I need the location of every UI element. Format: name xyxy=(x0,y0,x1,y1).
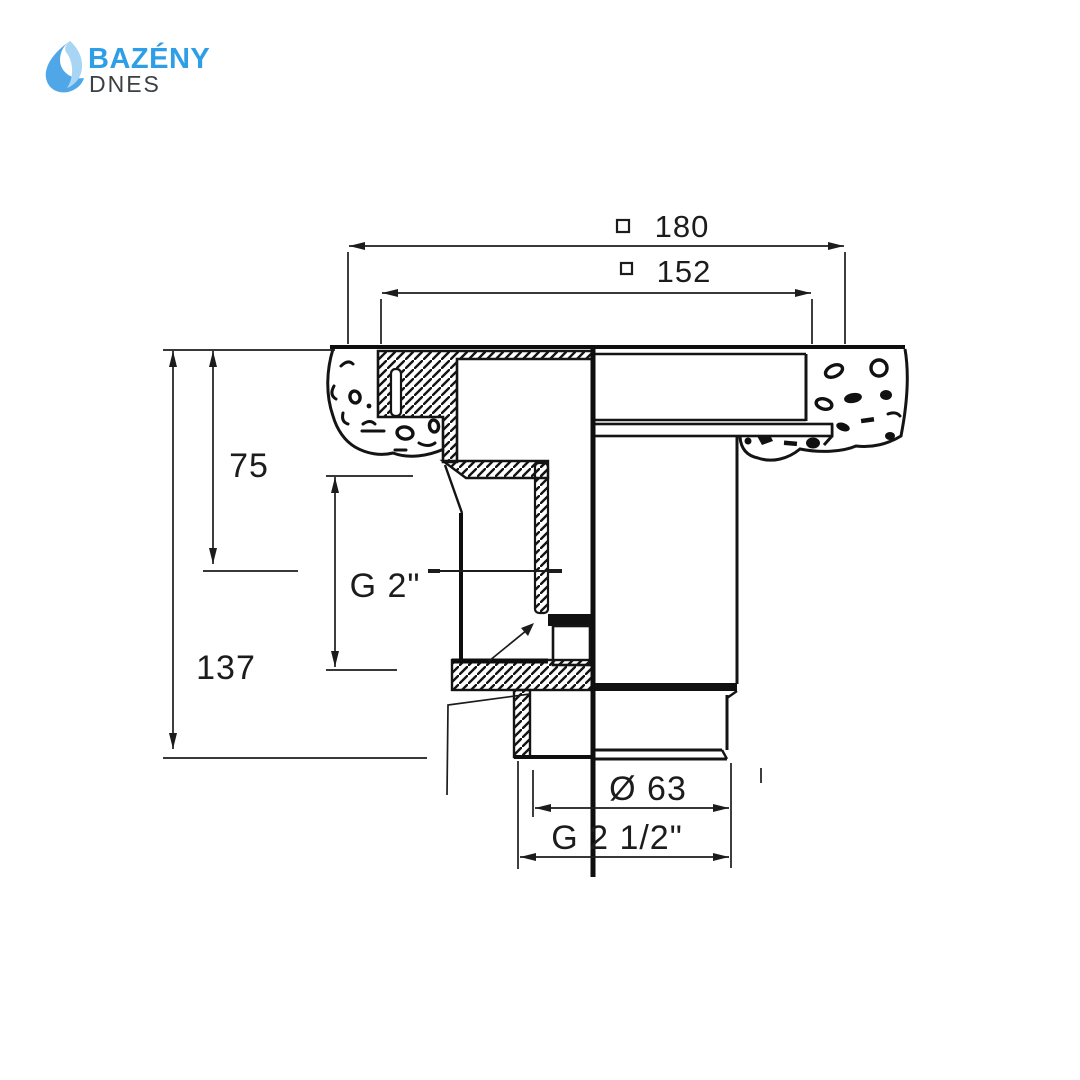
logo: BAZÉNY DNES xyxy=(46,41,210,97)
logo-brand-text: BAZÉNY xyxy=(88,41,210,75)
logo-sub-text: DNES xyxy=(89,71,161,97)
screenshot-root: BAZÉNY DNES xyxy=(0,0,1080,1080)
dim-label-outlet-thread: G 2 1/2" xyxy=(551,819,683,857)
body-floor-section xyxy=(452,660,593,690)
square-symbol-icon xyxy=(621,263,632,274)
dim-label-side-thread: G 2" xyxy=(350,567,421,605)
flange-section xyxy=(378,351,593,462)
dimension-side-thread: G 2" xyxy=(326,476,420,670)
dim-label-outlet-diameter: Ø 63 xyxy=(609,770,687,808)
bore-step xyxy=(548,614,593,626)
dim-label-outer-width: 180 xyxy=(655,209,710,244)
dimension-outer-width: 180 xyxy=(348,209,845,344)
flange-exterior-right xyxy=(593,354,832,436)
dim-label-inner-width: 152 xyxy=(657,254,712,289)
dimension-port-axis-depth: 75 xyxy=(163,350,335,571)
flange-screw-slot xyxy=(391,369,401,416)
outlet-spigot-section xyxy=(514,690,593,757)
square-symbol-icon xyxy=(617,220,629,232)
dim-label-port-axis-depth: 75 xyxy=(229,447,269,485)
body-exterior-right xyxy=(593,436,737,759)
side-port-section xyxy=(443,461,593,690)
concrete-wall-right xyxy=(740,349,907,460)
dimension-inner-width: 152 xyxy=(381,254,812,344)
technical-drawing: BAZÉNY DNES xyxy=(0,0,1080,1080)
dim-label-total-depth: 137 xyxy=(196,649,256,687)
